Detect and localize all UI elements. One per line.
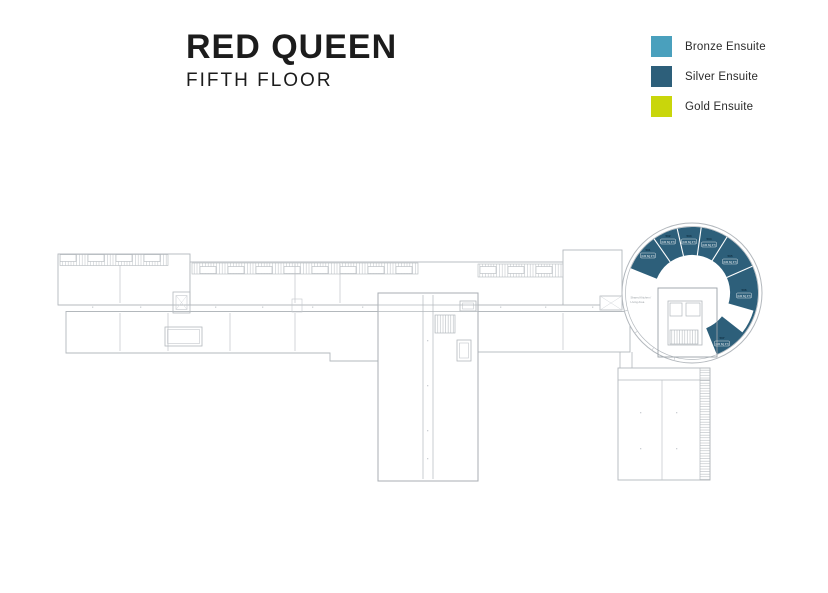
legend-label: Bronze Ensuite — [685, 41, 766, 53]
page-title: RED QUEEN — [186, 28, 397, 66]
svg-text:(160 SQ FT): (160 SQ FT) — [715, 343, 728, 346]
legend-item-gold: Gold Ensuite — [651, 96, 766, 117]
stair-core — [435, 315, 455, 333]
rotunda-stair — [670, 330, 698, 344]
legend-item-bronze: Bronze Ensuite — [651, 36, 766, 57]
kitchen-annotation-line2: Living Area — [631, 300, 645, 304]
svg-text:506: 506 — [741, 288, 746, 292]
title-block: RED QUEEN FIFTH FLOOR — [186, 28, 397, 92]
svg-text:(160 SQ FT): (160 SQ FT) — [661, 241, 674, 244]
floorplan-page: RED QUEEN FIFTH FLOOR Bronze Ensuite Sil… — [0, 0, 828, 588]
legend-item-silver: Silver Ensuite — [651, 66, 766, 87]
central-tower-wing — [378, 293, 478, 481]
bronze-color-swatch — [651, 36, 672, 57]
svg-text:505: 505 — [727, 254, 732, 258]
svg-text:507: 507 — [719, 336, 724, 340]
legend-label: Gold Ensuite — [685, 101, 753, 113]
corridor — [58, 305, 622, 312]
svg-text:504: 504 — [706, 237, 711, 241]
svg-text:(160 SQ FT): (160 SQ FT) — [723, 261, 736, 264]
svg-text:(160 SQ FT): (160 SQ FT) — [682, 241, 695, 244]
legend-label: Silver Ensuite — [685, 71, 758, 83]
svg-text:(160 SQ FT): (160 SQ FT) — [737, 295, 750, 298]
svg-text:(160 SQ FT): (160 SQ FT) — [702, 244, 715, 247]
rotunda-link — [600, 296, 622, 310]
legend: Bronze Ensuite Silver Ensuite Gold Ensui… — [651, 36, 766, 126]
svg-text:(160 SQ FT): (160 SQ FT) — [641, 255, 654, 258]
gold-color-swatch — [651, 96, 672, 117]
svg-text:501: 501 — [645, 248, 650, 252]
south-connector — [620, 352, 632, 368]
silver-color-swatch — [651, 66, 672, 87]
page-subtitle: FIFTH FLOOR — [186, 70, 397, 92]
svg-text:502: 502 — [665, 234, 670, 238]
southeast-block — [618, 368, 710, 480]
svg-text:503: 503 — [686, 234, 691, 238]
